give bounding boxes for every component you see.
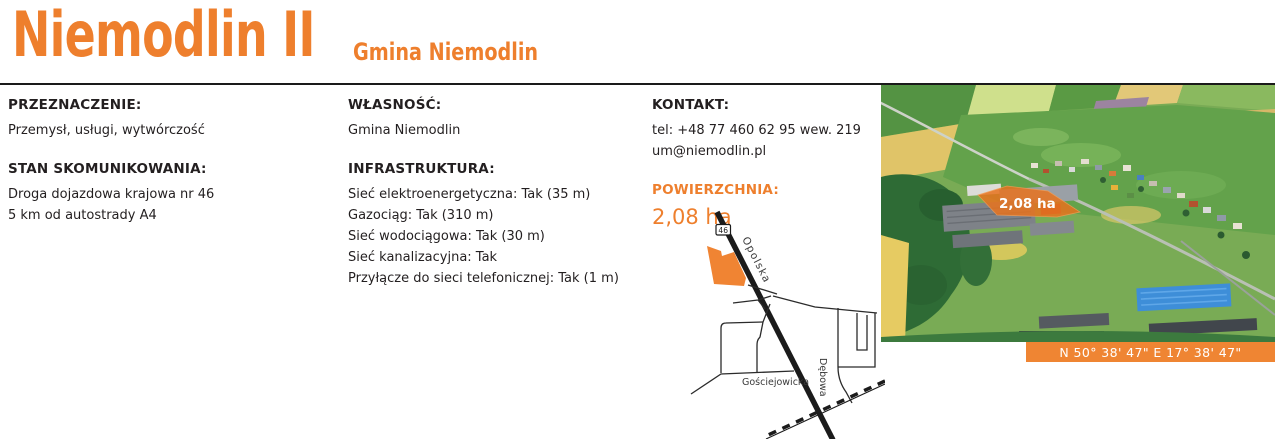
stan-line: Droga dojazdowa krajowa nr 46 bbox=[8, 184, 338, 205]
kontakt-phone: tel: +48 77 460 62 95 wew. 219 bbox=[652, 120, 882, 141]
kontakt-label: KONTAKT: bbox=[652, 97, 882, 113]
aerial-photo: 2,08 ha bbox=[881, 85, 1275, 342]
road-46-badge: 46 bbox=[716, 225, 731, 236]
page-title: Niemodlin II bbox=[12, 4, 315, 66]
wlasnosc-value: Gmina Niemodlin bbox=[348, 120, 648, 141]
przeznaczenie-label: PRZEZNACZENIE: bbox=[8, 97, 338, 113]
infrastruktura-line: Przyłącze do sieci telefonicznej: Tak (1… bbox=[348, 268, 648, 289]
street-label-gosciejowicka: Gościejowicka bbox=[742, 377, 809, 388]
stan-line: 5 km od autostrady A4 bbox=[8, 205, 338, 226]
powierzchnia-label: POWIERZCHNIA: bbox=[652, 182, 882, 198]
section-kontakt: KONTAKT: tel: +48 77 460 62 95 wew. 219 … bbox=[652, 97, 882, 162]
photo-area-label: 2,08 ha bbox=[999, 196, 1056, 212]
stan-label: STAN SKOMUNIKOWANIA: bbox=[8, 161, 338, 177]
road-46-label: 46 bbox=[718, 226, 728, 235]
infrastruktura-label: INFRASTRUKTURA: bbox=[348, 161, 648, 177]
section-infrastruktura: INFRASTRUKTURA: Sieć elektroenergetyczna… bbox=[348, 161, 648, 289]
section-przeznaczenie: PRZEZNACZENIE: Przemysł, usługi, wytwórc… bbox=[8, 97, 338, 141]
map-main-road bbox=[717, 212, 833, 439]
investment-offer-sheet: Niemodlin II Gmina Niemodlin PRZEZNACZEN… bbox=[0, 0, 1275, 439]
photo-field-yellow bbox=[881, 235, 909, 342]
infrastruktura-line: Sieć kanalizacyjna: Tak bbox=[348, 247, 648, 268]
location-map: 46 Opolska Gościejowicka Dębowa bbox=[686, 198, 885, 439]
infrastruktura-line: Sieć wodociągowa: Tak (30 m) bbox=[348, 226, 648, 247]
section-stan-skomunikowania: STAN SKOMUNIKOWANIA: Droga dojazdowa kra… bbox=[8, 161, 338, 226]
infrastruktura-line: Gazociąg: Tak (310 m) bbox=[348, 205, 648, 226]
street-label-debowa: Dębowa bbox=[817, 358, 828, 397]
page-subtitle: Gmina Niemodlin bbox=[353, 38, 538, 66]
coordinates-bar: N 50° 38' 47" E 17° 38' 47" bbox=[1026, 342, 1275, 362]
coordinates-text: N 50° 38' 47" E 17° 38' 47" bbox=[1059, 345, 1241, 360]
przeznaczenie-value: Przemysł, usługi, wytwórczość bbox=[8, 120, 338, 141]
section-wlasnosc: WŁASNOŚĆ: Gmina Niemodlin bbox=[348, 97, 648, 141]
kontakt-email: um@niemodlin.pl bbox=[652, 141, 882, 162]
infrastruktura-line: Sieć elektroenergetyczna: Tak (35 m) bbox=[348, 184, 648, 205]
wlasnosc-label: WŁASNOŚĆ: bbox=[348, 97, 648, 113]
